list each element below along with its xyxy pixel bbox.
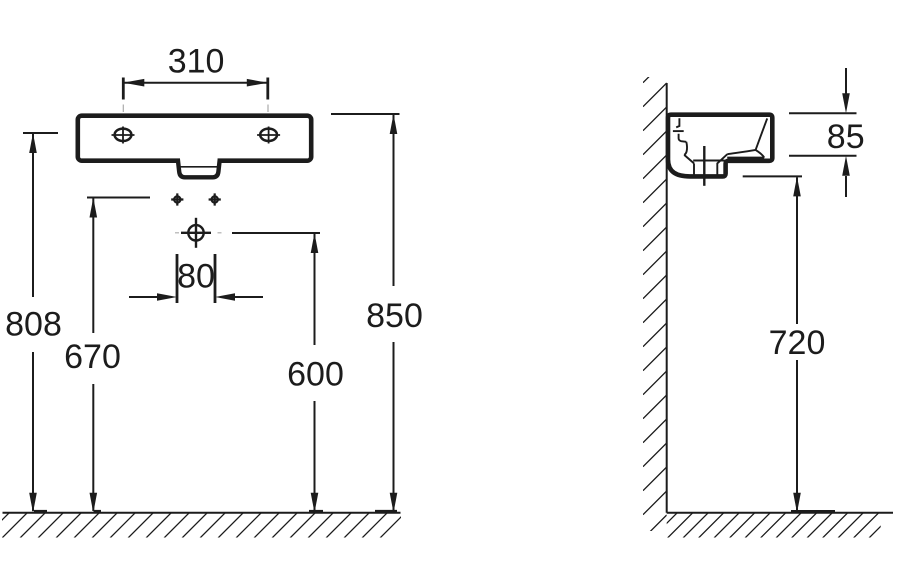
svg-text:720: 720 xyxy=(769,324,826,362)
svg-text:850: 850 xyxy=(366,297,423,335)
svg-text:80: 80 xyxy=(177,258,215,296)
svg-text:600: 600 xyxy=(287,356,344,394)
svg-text:85: 85 xyxy=(827,118,865,156)
svg-text:310: 310 xyxy=(168,43,225,81)
svg-text:808: 808 xyxy=(5,306,62,344)
svg-text:670: 670 xyxy=(64,338,121,376)
